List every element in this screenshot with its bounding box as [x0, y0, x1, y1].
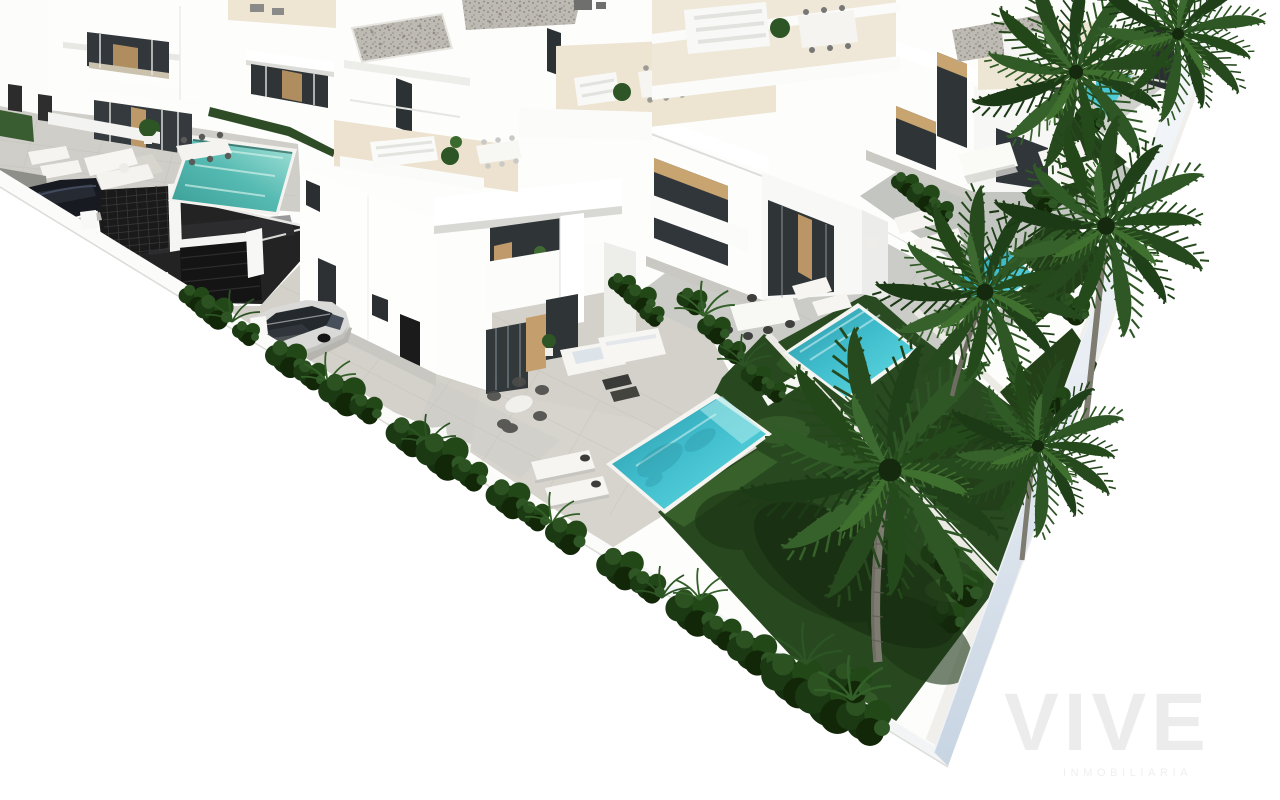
- svg-text:INMOBILIARIA: INMOBILIARIA: [1063, 767, 1192, 779]
- svg-text:VIVE: VIVE: [1004, 677, 1211, 768]
